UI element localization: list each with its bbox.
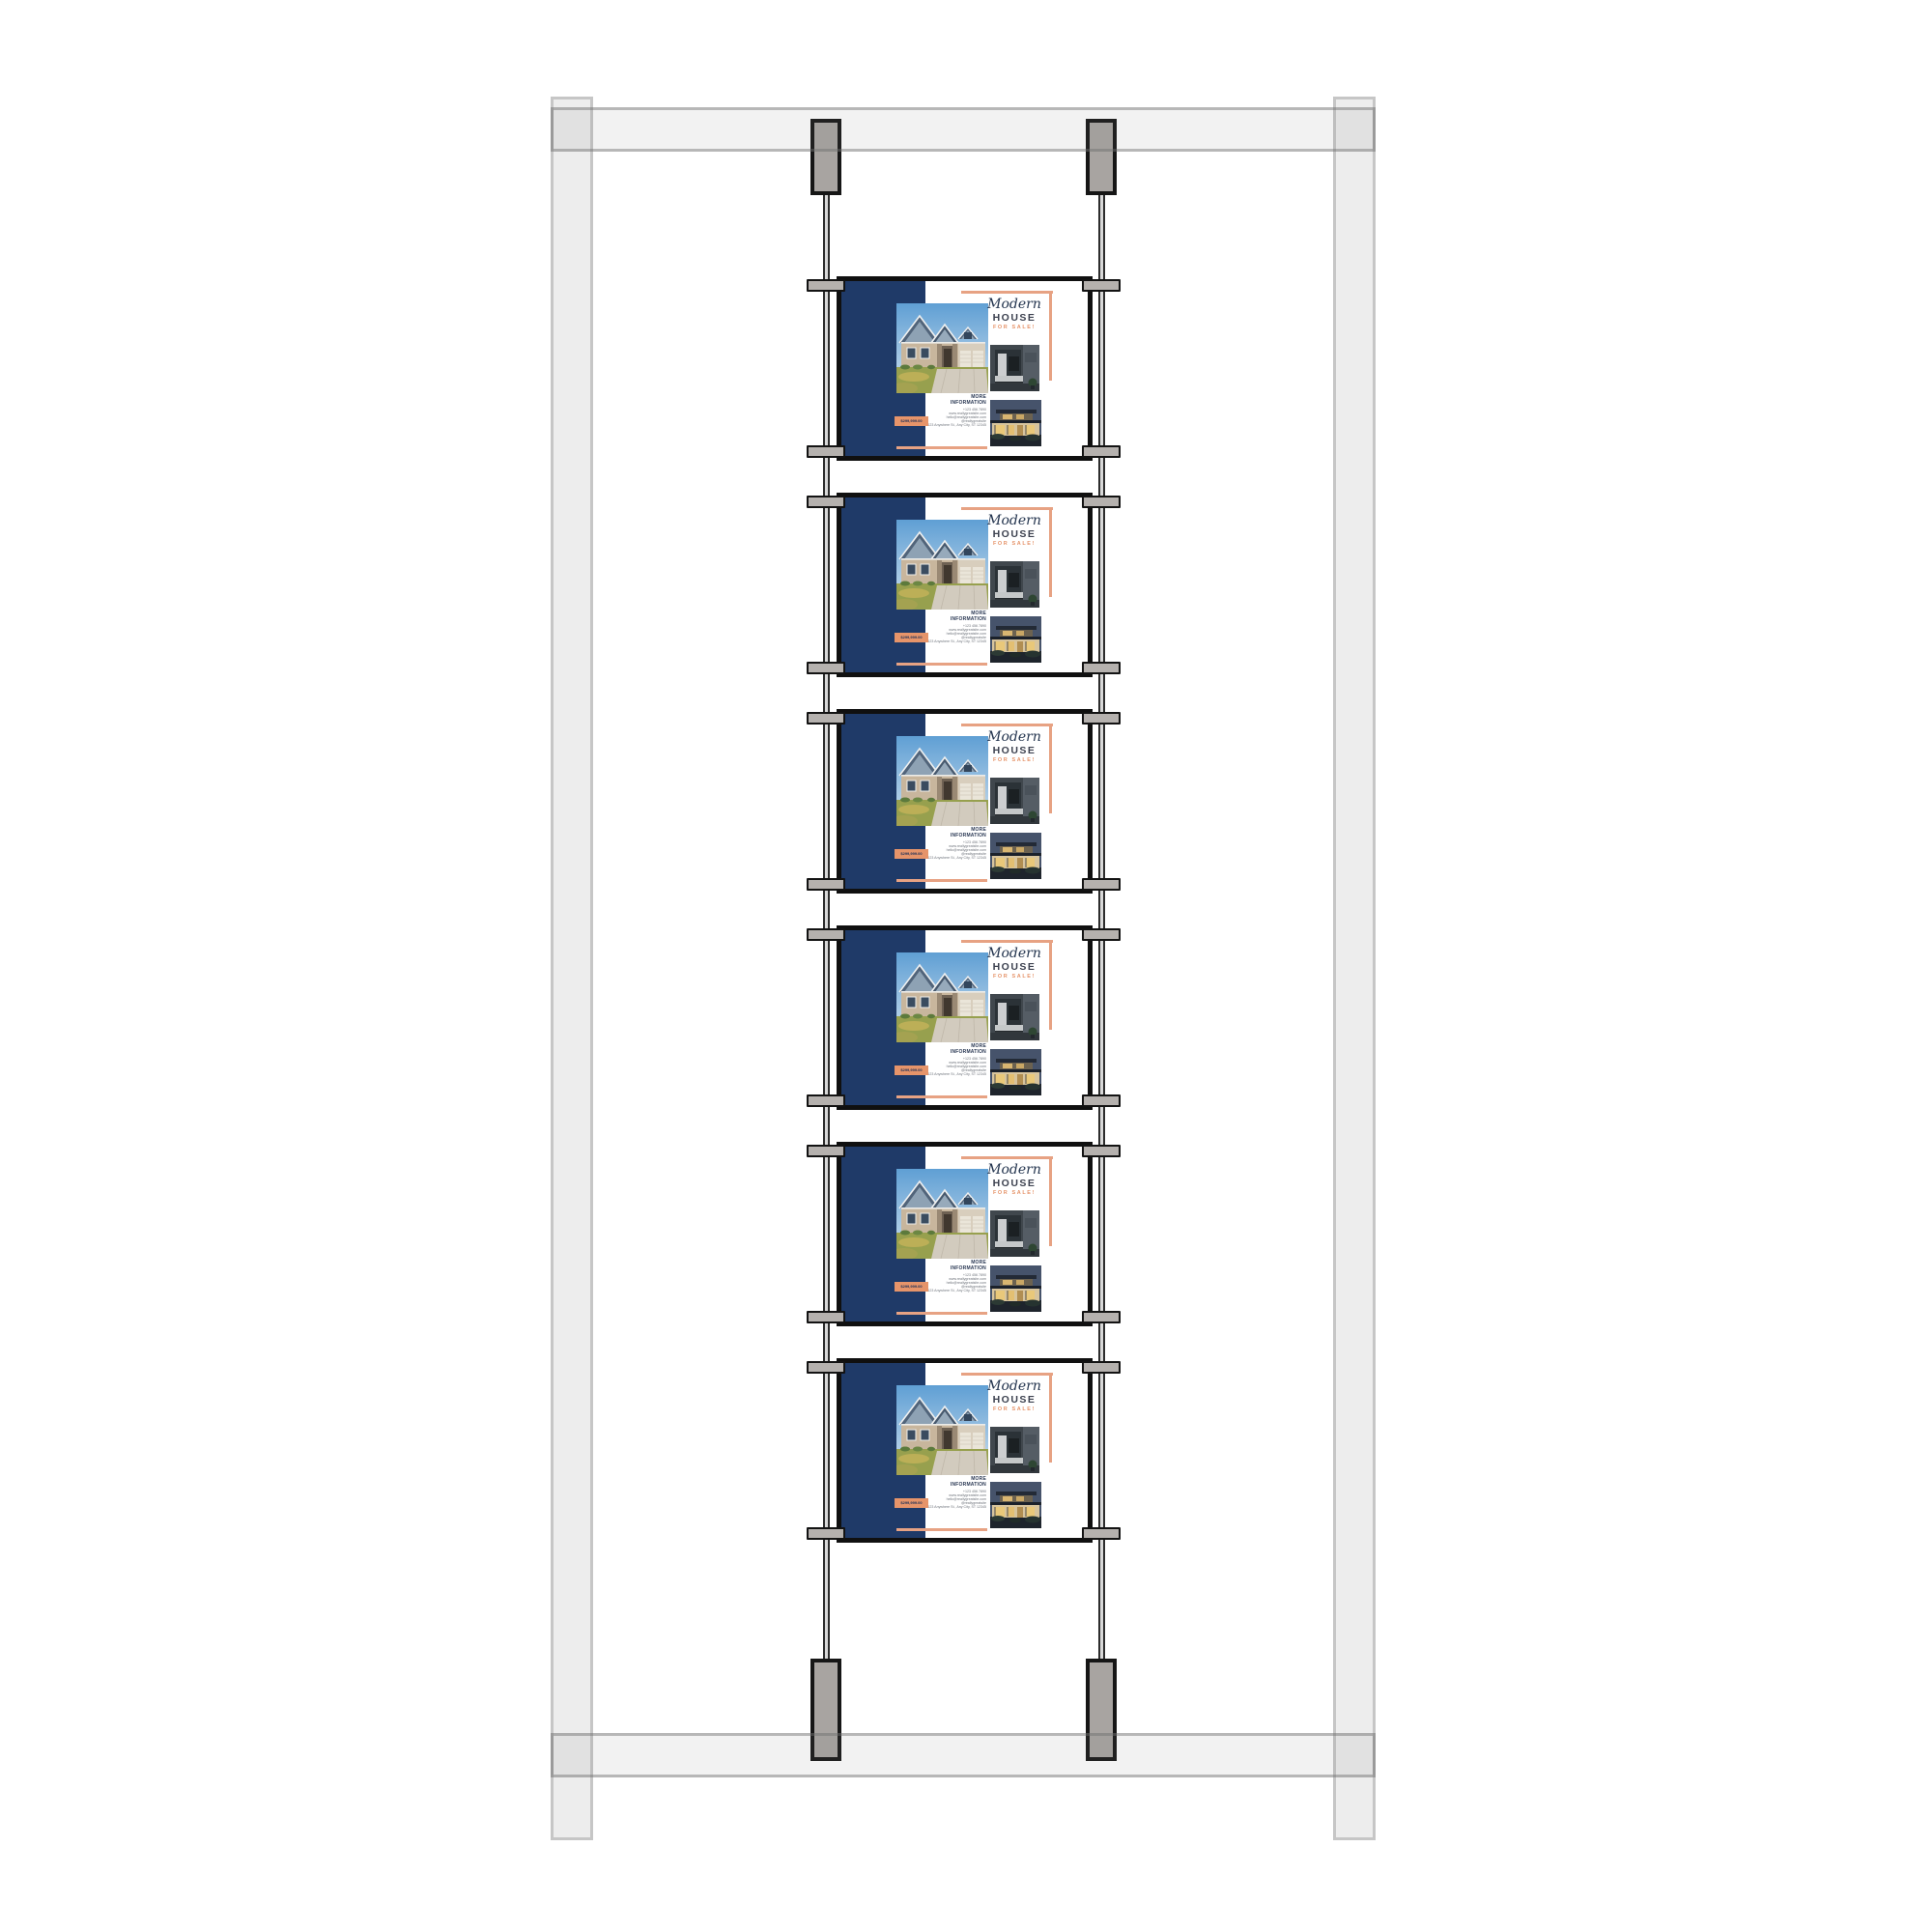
cable-clamp-bottom-left	[807, 662, 845, 674]
flyer-poster: Modern HOUSE FOR SALE! MORE INFORMATION	[837, 1142, 1093, 1326]
flyer-title-block: Modern HOUSE FOR SALE!	[986, 514, 1042, 547]
flyer-subtitle: FOR SALE!	[986, 325, 1042, 330]
flyer-corner-line-top	[961, 940, 1053, 943]
more-info-line2: INFORMATION	[928, 617, 986, 623]
flyer-bottom-line	[896, 879, 987, 882]
flyer-title-block: Modern HOUSE FOR SALE!	[986, 947, 1042, 980]
flyer-more-information: MORE INFORMATION	[928, 828, 986, 838]
cable-clamp-top-left	[807, 1361, 845, 1374]
cable-clamp-bottom-left	[807, 1094, 845, 1107]
flyer-subtitle: FOR SALE!	[986, 1190, 1042, 1196]
flyer-corner-line-right	[1049, 1373, 1052, 1463]
flyer-title-block: Modern HOUSE FOR SALE!	[986, 1379, 1042, 1412]
dusk-house-photo	[990, 1049, 1041, 1095]
dusk-house-photo	[990, 400, 1041, 446]
poster-unit-3: Modern HOUSE FOR SALE! MORE INFORMATION	[807, 709, 1121, 894]
flyer-corner-line-right	[1049, 724, 1052, 813]
more-info-line2: INFORMATION	[928, 1050, 986, 1056]
flyer-poster: Modern HOUSE FOR SALE! MORE INFORMATION	[837, 925, 1093, 1110]
flyer-script-word: Modern	[986, 947, 1042, 961]
flyer-price-tag: $299,999.00	[895, 1065, 928, 1075]
cable-clamp-top-right	[1082, 279, 1121, 292]
flyer-more-information: MORE INFORMATION	[928, 611, 986, 622]
flyer-corner-line-right	[1049, 291, 1052, 381]
flyer-title: HOUSE	[986, 529, 1042, 539]
flyer-price-tag: $299,999.00	[895, 1498, 928, 1508]
flyer-poster: Modern HOUSE FOR SALE! MORE INFORMATION	[837, 276, 1093, 461]
flyer-price-tag: $299,999.00	[895, 849, 928, 859]
cable-clamp-top-right	[1082, 928, 1121, 941]
flyer-subtitle: FOR SALE!	[986, 974, 1042, 980]
more-info-line2: INFORMATION	[928, 1266, 986, 1272]
main-house-photo	[896, 303, 988, 393]
flyer-title: HOUSE	[986, 962, 1042, 972]
cable-clamp-bottom-right	[1082, 445, 1121, 458]
cable-clamp-bottom-left	[807, 1311, 845, 1323]
flyer-subtitle: FOR SALE!	[986, 757, 1042, 763]
flyer-bottom-line	[896, 1095, 987, 1098]
more-info-line2: INFORMATION	[928, 834, 986, 839]
cable-clamp-bottom-left	[807, 1527, 845, 1540]
flyer-corner-line-top	[961, 507, 1053, 510]
cable-clamp-bottom-right	[1082, 878, 1121, 891]
flyer-bottom-line	[896, 1528, 987, 1531]
flyer-title: HOUSE	[986, 313, 1042, 323]
poster-stack: Modern HOUSE FOR SALE! MORE INFORMATION	[0, 0, 1932, 1932]
dusk-house-photo	[990, 616, 1041, 663]
interior-photo	[990, 994, 1039, 1040]
poster-unit-5: Modern HOUSE FOR SALE! MORE INFORMATION	[807, 1142, 1121, 1326]
more-info-line2: INFORMATION	[928, 1483, 986, 1489]
interior-photo	[990, 345, 1039, 391]
dusk-house-photo	[990, 833, 1041, 879]
cable-clamp-top-left	[807, 496, 845, 508]
dusk-house-photo	[990, 1265, 1041, 1312]
main-house-photo	[896, 1169, 988, 1259]
flyer-corner-line-right	[1049, 940, 1052, 1030]
cable-clamp-top-right	[1082, 1145, 1121, 1157]
flyer-price-tag: $299,999.00	[895, 1282, 928, 1292]
flyer-more-information: MORE INFORMATION	[928, 1044, 986, 1055]
main-house-photo	[896, 736, 988, 826]
flyer-bottom-line	[896, 446, 987, 449]
cable-clamp-top-left	[807, 928, 845, 941]
cable-clamp-bottom-left	[807, 878, 845, 891]
main-house-photo	[896, 952, 988, 1042]
cable-clamp-bottom-right	[1082, 1311, 1121, 1323]
flyer-subtitle: FOR SALE!	[986, 1406, 1042, 1412]
flyer-more-information: MORE INFORMATION	[928, 1261, 986, 1271]
main-house-photo	[896, 1385, 988, 1475]
cable-clamp-top-left	[807, 279, 845, 292]
flyer-title-block: Modern HOUSE FOR SALE!	[986, 298, 1042, 330]
flyer-title-block: Modern HOUSE FOR SALE!	[986, 1163, 1042, 1196]
flyer-corner-line-right	[1049, 1156, 1052, 1246]
flyer-price-tag: $299,999.00	[895, 416, 928, 426]
cable-clamp-top-left	[807, 712, 845, 724]
cable-clamp-top-right	[1082, 496, 1121, 508]
cable-clamp-top-left	[807, 1145, 845, 1157]
flyer-more-information: MORE INFORMATION	[928, 395, 986, 406]
flyer-corner-line-top	[961, 1156, 1053, 1159]
flyer-script-word: Modern	[986, 298, 1042, 312]
flyer-price-tag: $299,999.00	[895, 633, 928, 642]
poster-unit-2: Modern HOUSE FOR SALE! MORE INFORMATION	[807, 493, 1121, 677]
flyer-title: HOUSE	[986, 1179, 1042, 1188]
flyer-script-word: Modern	[986, 730, 1042, 745]
more-info-line2: INFORMATION	[928, 401, 986, 407]
interior-photo	[990, 1427, 1039, 1473]
poster-unit-1: Modern HOUSE FOR SALE! MORE INFORMATION	[807, 276, 1121, 461]
flyer-bottom-line	[896, 1312, 987, 1315]
flyer-title-block: Modern HOUSE FOR SALE!	[986, 730, 1042, 763]
flyer-corner-line-right	[1049, 507, 1052, 597]
main-house-photo	[896, 520, 988, 610]
flyer-script-word: Modern	[986, 1163, 1042, 1178]
poster-unit-4: Modern HOUSE FOR SALE! MORE INFORMATION	[807, 925, 1121, 1110]
flyer-corner-line-top	[961, 291, 1053, 294]
interior-photo	[990, 1210, 1039, 1257]
flyer-poster: Modern HOUSE FOR SALE! MORE INFORMATION	[837, 493, 1093, 677]
cable-clamp-top-right	[1082, 1361, 1121, 1374]
flyer-more-information: MORE INFORMATION	[928, 1477, 986, 1488]
cable-clamp-bottom-left	[807, 445, 845, 458]
flyer-script-word: Modern	[986, 514, 1042, 528]
flyer-corner-line-top	[961, 1373, 1053, 1376]
flyer-bottom-line	[896, 663, 987, 666]
flyer-corner-line-top	[961, 724, 1053, 726]
cable-clamp-bottom-right	[1082, 1094, 1121, 1107]
dusk-house-photo	[990, 1482, 1041, 1528]
cable-clamp-top-right	[1082, 712, 1121, 724]
flyer-poster: Modern HOUSE FOR SALE! MORE INFORMATION	[837, 709, 1093, 894]
cable-clamp-bottom-right	[1082, 1527, 1121, 1540]
cable-clamp-bottom-right	[1082, 662, 1121, 674]
interior-photo	[990, 778, 1039, 824]
interior-photo	[990, 561, 1039, 608]
flyer-poster: Modern HOUSE FOR SALE! MORE INFORMATION	[837, 1358, 1093, 1543]
flyer-title: HOUSE	[986, 746, 1042, 755]
flyer-title: HOUSE	[986, 1395, 1042, 1405]
flyer-script-word: Modern	[986, 1379, 1042, 1394]
flyer-subtitle: FOR SALE!	[986, 541, 1042, 547]
cable-display-scene: Modern HOUSE FOR SALE! MORE INFORMATION	[0, 0, 1932, 1932]
poster-unit-6: Modern HOUSE FOR SALE! MORE INFORMATION	[807, 1358, 1121, 1543]
